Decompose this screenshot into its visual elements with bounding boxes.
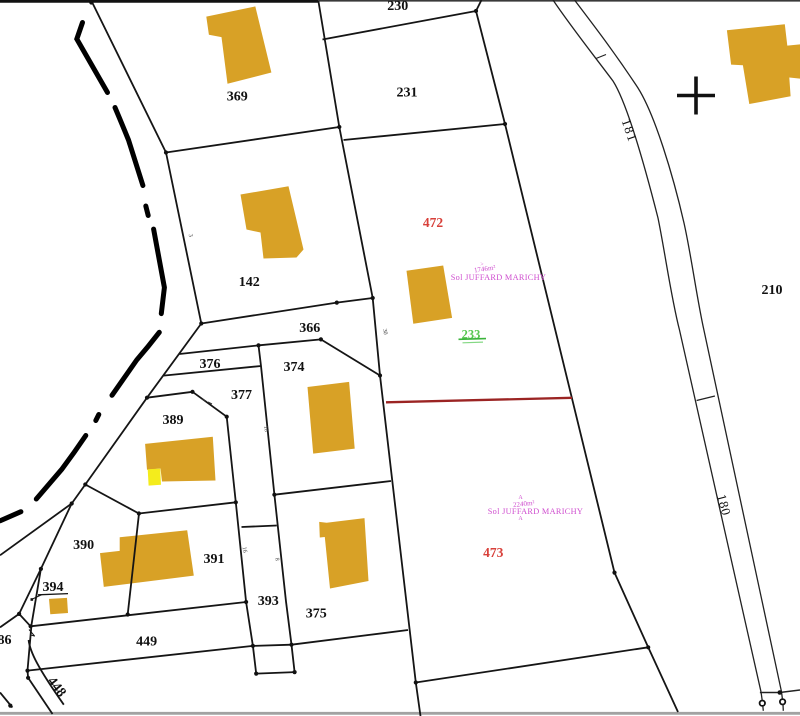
svg-text:369: 369 xyxy=(227,90,248,105)
svg-text:16: 16 xyxy=(241,546,248,553)
svg-text:374: 374 xyxy=(284,360,305,375)
svg-text:366: 366 xyxy=(299,321,320,336)
svg-text:210: 210 xyxy=(762,283,783,298)
svg-text:Sol JUFFARD MARICHY: Sol JUFFARD MARICHY xyxy=(451,273,546,282)
svg-text:472: 472 xyxy=(423,215,444,230)
svg-text:394: 394 xyxy=(43,580,64,595)
svg-text:231: 231 xyxy=(397,85,418,100)
svg-text:393: 393 xyxy=(258,594,279,609)
svg-text:Sol JUFFARD MARICHY: Sol JUFFARD MARICHY xyxy=(488,507,583,516)
svg-text:142: 142 xyxy=(239,275,260,290)
svg-text:86: 86 xyxy=(0,633,12,648)
svg-text:30: 30 xyxy=(381,328,388,335)
svg-text:230: 230 xyxy=(387,0,408,14)
svg-text:389: 389 xyxy=(163,413,184,428)
svg-text:A: A xyxy=(518,495,523,501)
svg-text:377: 377 xyxy=(231,388,252,403)
svg-text:391: 391 xyxy=(204,552,225,567)
svg-text:18: 18 xyxy=(262,425,269,432)
svg-text:376: 376 xyxy=(200,357,221,372)
svg-text:449: 449 xyxy=(136,635,157,650)
svg-text:473: 473 xyxy=(483,545,504,560)
svg-text:375: 375 xyxy=(306,607,327,622)
svg-text:A: A xyxy=(518,516,523,522)
svg-text:390: 390 xyxy=(73,538,94,553)
